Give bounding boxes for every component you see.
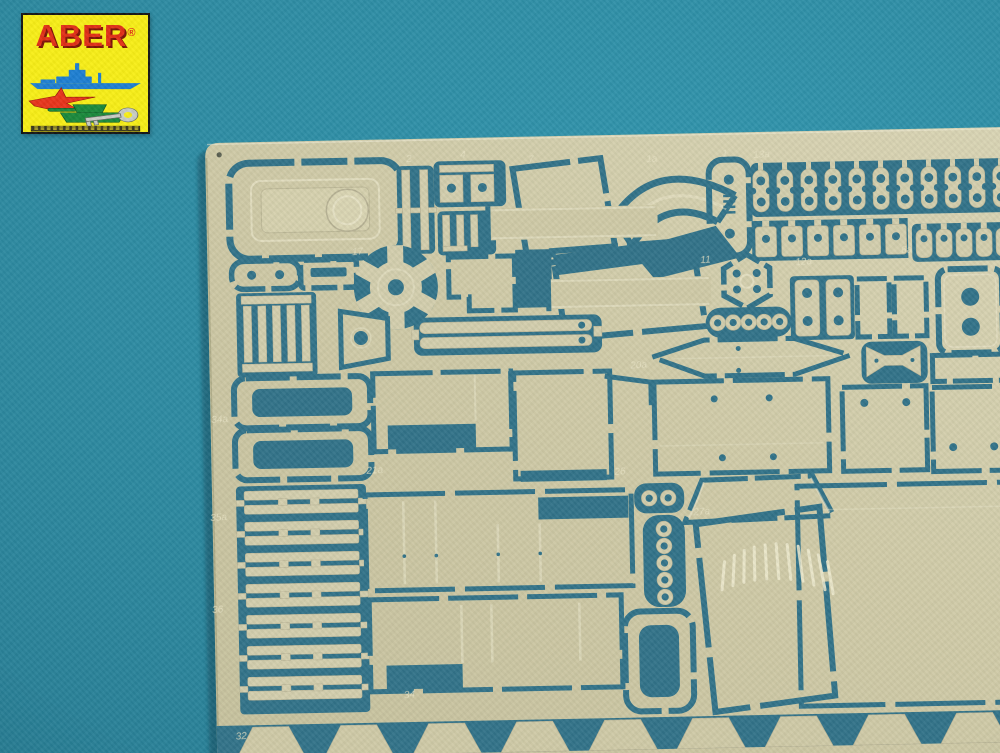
part-tread-ladder: [236, 484, 371, 715]
photo: 2 4 7 1a 1 13a 17 11 12a 6a 20a 21a 26 2…: [0, 0, 1000, 753]
part-open-frames: [234, 376, 372, 481]
part-vent-grille: [236, 292, 318, 378]
marking: 11: [700, 254, 711, 266]
aber-logo: ABER®: [21, 13, 150, 134]
marking: 1: [722, 148, 728, 159]
part-ring-chain-horizontal: [705, 306, 792, 338]
marking: 1a: [646, 153, 658, 165]
track-strip-icon: [31, 126, 140, 131]
part-twin-strips: [412, 314, 603, 356]
marking: 2: [405, 154, 413, 165]
brand-text: ABER: [36, 18, 128, 53]
part-twin-ring-sight: [634, 483, 685, 514]
part-bolt-plates: [433, 160, 506, 207]
marking: 36: [212, 604, 224, 616]
part-ring-chain-vertical: [643, 515, 687, 608]
etched-sheet: 2 4 7 1a 1 13a 17 11 12a 6a 20a 21a 26 2…: [197, 125, 1000, 753]
part-bowtie-clamp: [861, 341, 928, 384]
marking: 34: [404, 689, 416, 701]
brand-row: ABER®: [36, 17, 136, 58]
part-track-link-row: [749, 158, 1000, 217]
marking: 34a: [211, 414, 229, 426]
marking: 12a: [795, 256, 813, 268]
part-tapered-key-plate: [340, 310, 388, 367]
part-hinge-plate-row: [912, 222, 1000, 262]
marking: 21a: [365, 465, 384, 477]
etched-sheet-photo: 2 4 7 1a 1 13a 17 11 12a 6a 20a 21a 26 2…: [0, 0, 1000, 753]
marking: 27a: [692, 506, 711, 518]
part-twin-bars: [394, 165, 437, 254]
part-bolt-plate-row: [752, 218, 909, 261]
marking: 32: [235, 731, 247, 743]
part-two-hole-plates: [790, 275, 855, 340]
logo-art: [27, 58, 144, 132]
registered-trademark: ®: [127, 27, 135, 39]
marking: 6a: [901, 244, 913, 256]
battleship-icon: [30, 63, 141, 89]
marking: 35a: [210, 512, 228, 524]
marking: 26: [613, 466, 626, 478]
marking: 20a: [629, 359, 648, 371]
marking: 13a: [753, 149, 771, 161]
marking: 17: [352, 246, 364, 258]
